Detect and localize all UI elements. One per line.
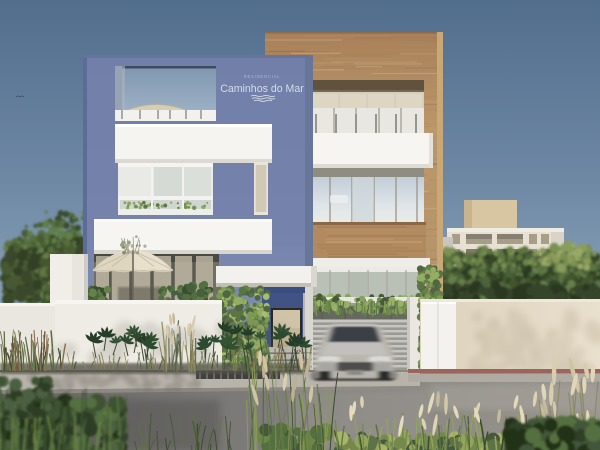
svg-text:RESIDENCIAL: RESIDENCIAL	[244, 74, 281, 79]
svg-text:Caminhos do Mar: Caminhos do Mar	[220, 83, 304, 95]
